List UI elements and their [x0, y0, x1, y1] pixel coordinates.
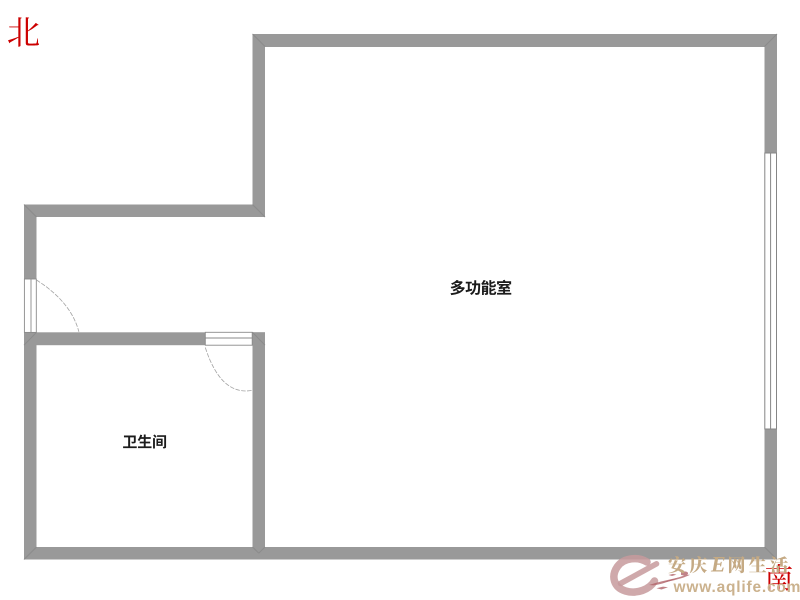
svg-text:E: E — [710, 552, 726, 577]
svg-text:www.aqlife.com: www.aqlife.com — [673, 579, 800, 596]
